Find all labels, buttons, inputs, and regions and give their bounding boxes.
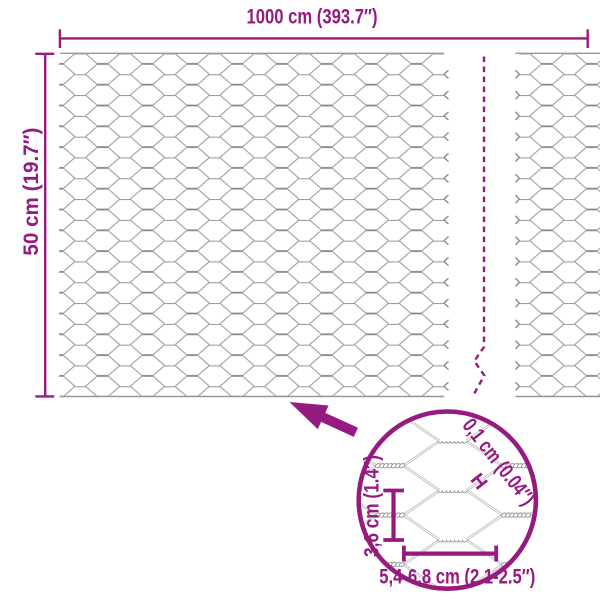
svg-text:1000 cm (393.7″): 1000 cm (393.7″) bbox=[247, 6, 378, 29]
svg-text:50 cm (19.7″): 50 cm (19.7″) bbox=[20, 128, 43, 256]
svg-text:5,4-6,8 cm (2.1-2.5″): 5,4-6,8 cm (2.1-2.5″) bbox=[379, 566, 535, 589]
